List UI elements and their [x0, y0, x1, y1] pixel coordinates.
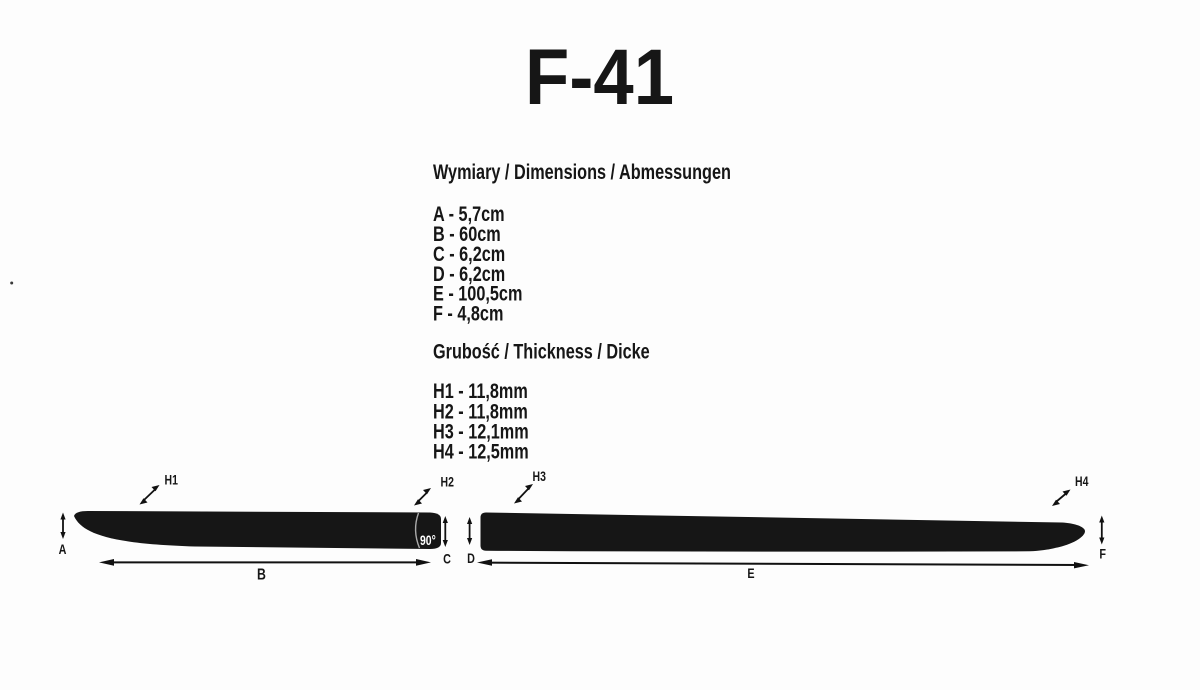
svg-text:H3: H3	[533, 469, 547, 484]
svg-text:B: B	[257, 567, 266, 584]
svg-text:F-41: F-41	[525, 33, 674, 121]
svg-text:F - 4,8cm: F - 4,8cm	[433, 303, 503, 326]
svg-text:F: F	[1099, 546, 1106, 562]
svg-text:D: D	[467, 550, 475, 566]
svg-text:Grubość / Thickness / Dicke: Grubość / Thickness / Dicke	[433, 341, 650, 364]
svg-text:C: C	[443, 551, 451, 567]
svg-text:E: E	[747, 565, 754, 581]
svg-text:H4 - 12,5mm: H4 - 12,5mm	[433, 441, 529, 464]
svg-text:H2: H2	[441, 475, 454, 490]
svg-text:H4: H4	[1075, 474, 1089, 489]
svg-text:Wymiary / Dimensions / Abmessu: Wymiary / Dimensions / Abmessungen	[433, 161, 731, 184]
svg-text:H1: H1	[165, 473, 179, 488]
svg-text:A: A	[59, 541, 67, 557]
svg-text:90°: 90°	[420, 533, 436, 548]
